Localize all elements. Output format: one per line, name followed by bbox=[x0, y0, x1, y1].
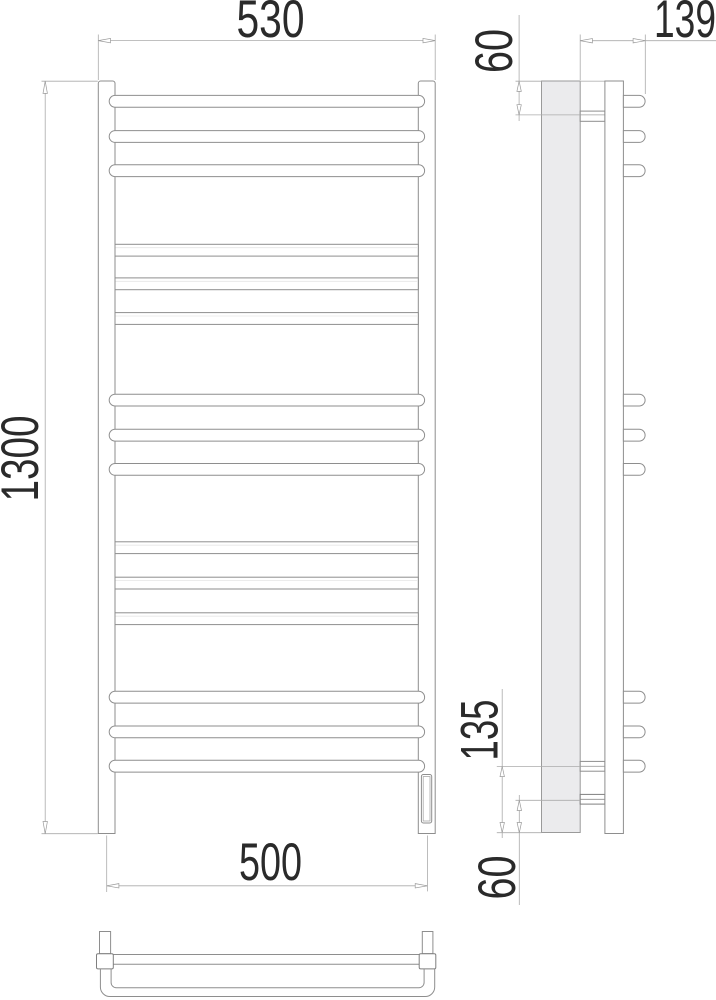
svg-text:1300: 1300 bbox=[0, 416, 50, 502]
svg-text:530: 530 bbox=[237, 0, 305, 49]
svg-text:139: 139 bbox=[654, 0, 716, 49]
svg-text:60: 60 bbox=[468, 856, 527, 900]
svg-text:500: 500 bbox=[239, 833, 302, 892]
svg-text:135: 135 bbox=[451, 700, 510, 761]
svg-text:60: 60 bbox=[465, 29, 524, 73]
